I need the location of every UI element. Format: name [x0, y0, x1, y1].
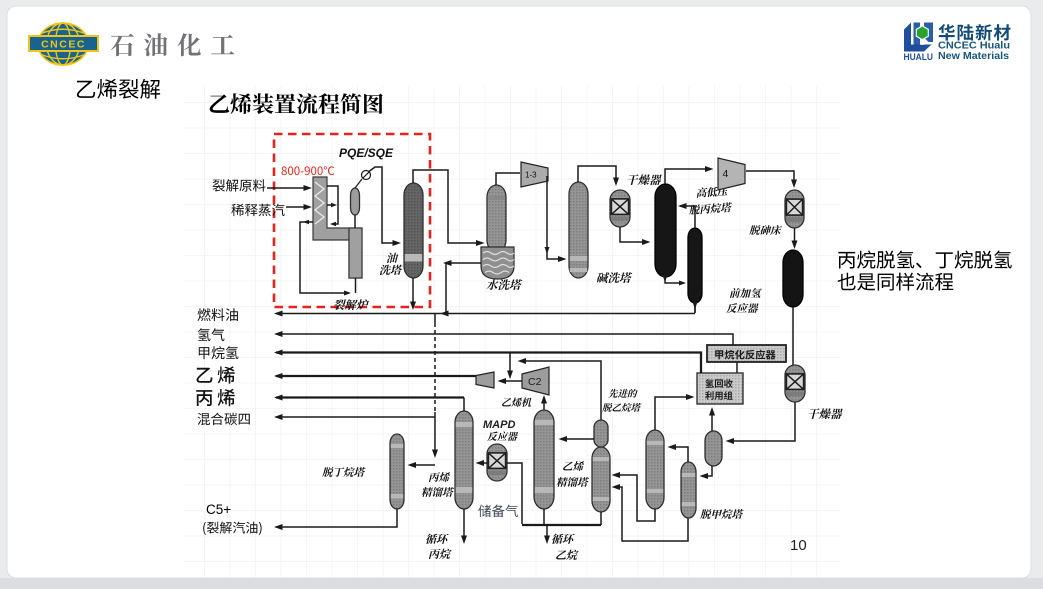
svg-text:C5+: C5+: [206, 502, 231, 517]
svg-text:MAPD: MAPD: [483, 419, 515, 431]
svg-text:C2: C2: [528, 376, 542, 388]
svg-text:CNCEC Hualu: CNCEC Hualu: [938, 41, 1010, 52]
svg-text:HUALU: HUALU: [904, 52, 934, 62]
svg-text:CNCEC: CNCEC: [41, 39, 86, 51]
svg-text:4: 4: [723, 168, 729, 180]
svg-text:PQE/SQE: PQE/SQE: [339, 146, 394, 160]
svg-text:1-3: 1-3: [525, 171, 537, 180]
svg-text:10: 10: [790, 537, 807, 554]
svg-text:New Materials: New Materials: [938, 51, 1009, 62]
